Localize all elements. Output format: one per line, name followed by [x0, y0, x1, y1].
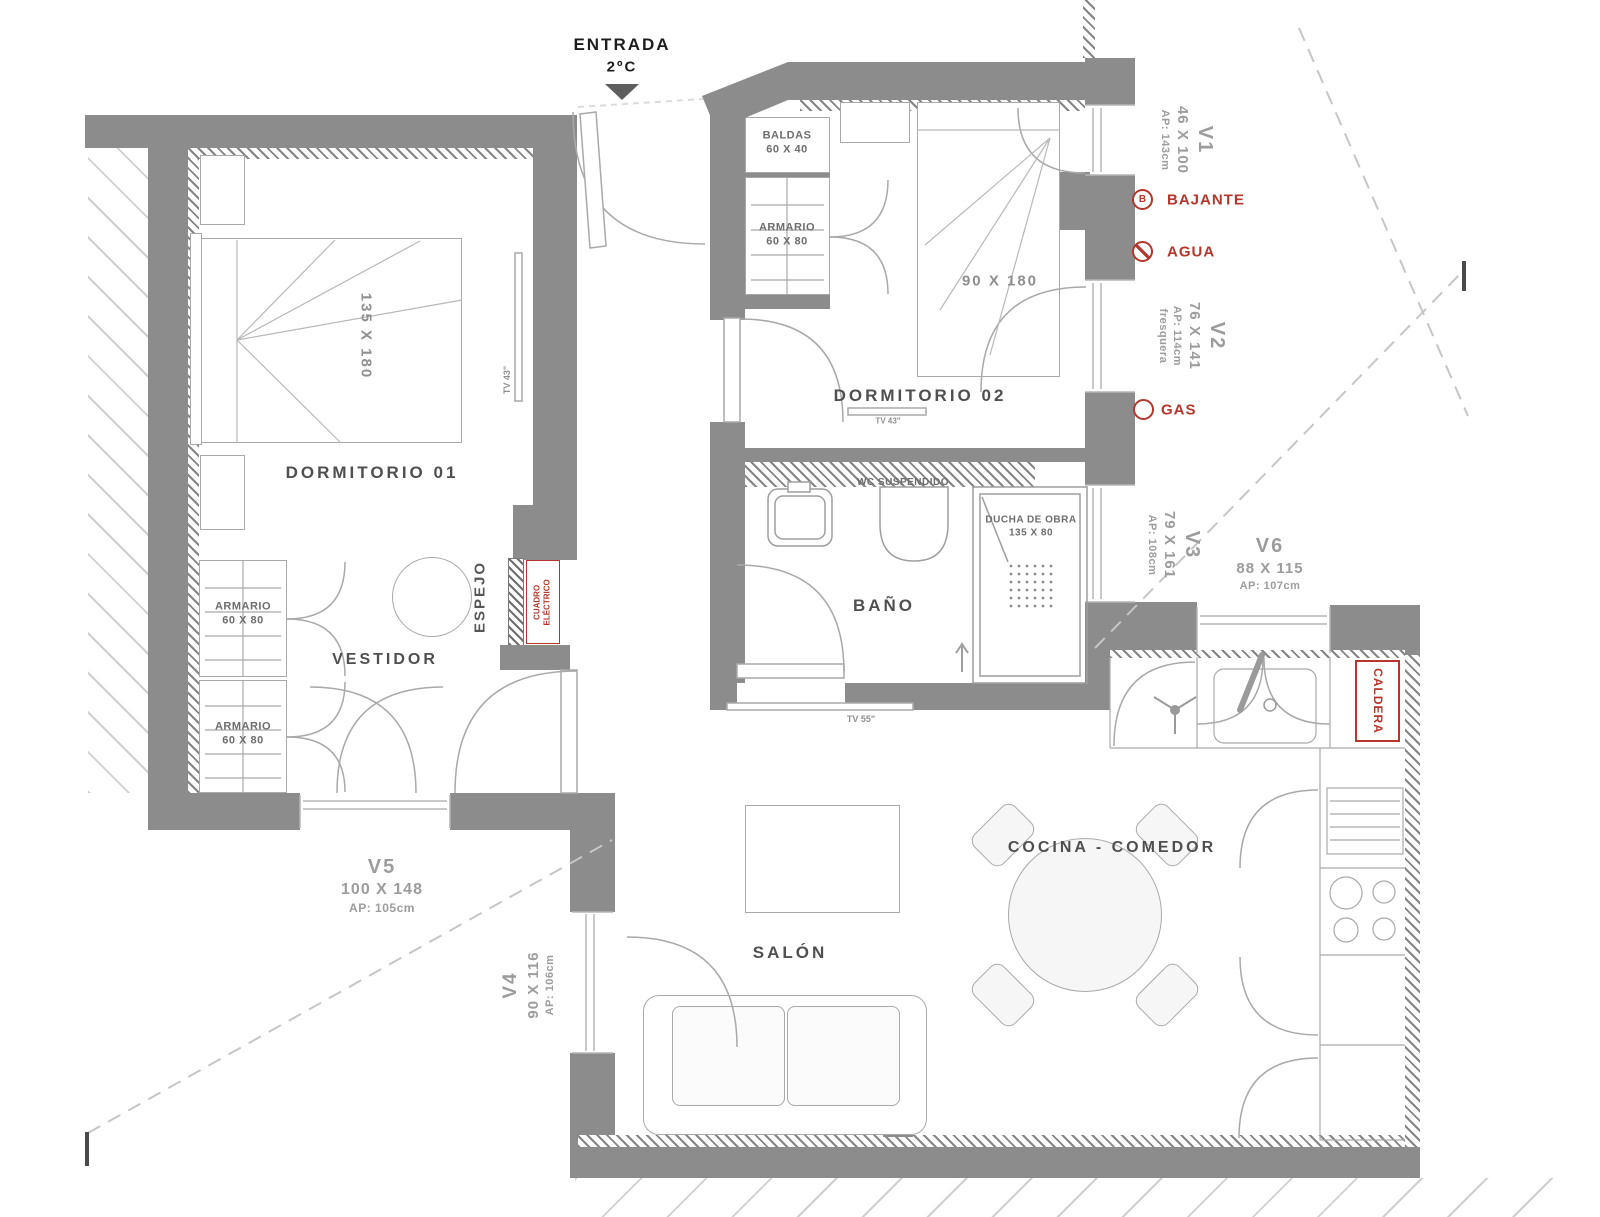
agua-label: AGUA [1167, 244, 1215, 261]
window-label-v4: V4 90 X 116 AP: 106cm [499, 951, 557, 1018]
window-v1-leaf-arc [1018, 108, 1085, 173]
cuadro-line2: ELÉCTRICO [543, 579, 553, 625]
v1-ap: AP: 143cm [1158, 106, 1172, 174]
window-label-v6: V6 88 X 115 AP: 107cm [1236, 533, 1303, 593]
gas-icon [1133, 399, 1154, 420]
ducha-name: DUCHA DE OBRA [985, 515, 1076, 528]
v2-size: 76 X 141 [1185, 302, 1205, 370]
ducha-label: DUCHA DE OBRA 135 X 80 [985, 515, 1076, 540]
v4-ap: AP: 106cm [543, 951, 557, 1018]
boundary-lines [87, 28, 1468, 1166]
armario-door-arc [287, 562, 345, 619]
entrance-temp: 2ºC [607, 59, 638, 76]
entrance-threshold [578, 99, 703, 107]
window-v6-leaf-arc [1264, 658, 1330, 724]
v3-size: 79 X 161 [1159, 511, 1179, 579]
vestidor-door-leaf [561, 670, 577, 793]
window-label-v2: V2 76 X 141 AP: 114cm fresquera [1156, 302, 1230, 370]
armario-door-arc [830, 180, 888, 237]
cuadro-line1: CUADRO [533, 579, 543, 625]
v2-note: fresquera [1156, 302, 1170, 370]
vestidor-door-arc [455, 671, 577, 793]
caldera-label: CALDERA [1371, 668, 1385, 734]
bed-size-dorm2: 90 X 180 [962, 273, 1038, 290]
armario-vestidor1-label: ARMARIO 60 X 80 [215, 600, 271, 628]
cabinet-door-arc [1239, 1058, 1318, 1138]
armario-door-arc [287, 682, 345, 737]
tv-label-dorm1: TV 43" [502, 366, 512, 394]
cuadro-electrico-label: CUADRO ELÉCTRICO [533, 579, 554, 625]
window-label-v3: V3 79 X 161 AP: 108cm [1145, 511, 1205, 579]
cabinet-door-arc [1240, 957, 1318, 1035]
v1-id: V1 [1192, 106, 1218, 174]
armario-size: 60 X 80 [215, 734, 271, 748]
wc-suspendido-label: WC SUSPENDIDO [857, 477, 949, 490]
room-label-vestidor: VESTIDOR [332, 651, 438, 669]
agua-icon [1132, 241, 1153, 262]
tv-salon [727, 703, 913, 710]
entrance-arrow-icon [605, 84, 639, 100]
room-label-cocina: COCINA - COMEDOR [1008, 839, 1216, 857]
armario-door-arc [830, 237, 888, 294]
gas-label: GAS [1161, 402, 1197, 419]
ducha-size: 135 X 80 [985, 527, 1076, 540]
tv-dorm1 [515, 253, 522, 401]
tv-dorm2 [848, 408, 926, 415]
entrance-door-leaf [580, 112, 606, 248]
armario-door-arc [287, 737, 345, 792]
armario-dorm2-label: ARMARIO 60 X 80 [759, 221, 815, 249]
bath-door-leaf [737, 664, 844, 678]
caldera-box: CALDERA [1355, 660, 1400, 742]
diagonal-wall [702, 62, 788, 130]
v2-id: V2 [1204, 302, 1230, 370]
window-v5-leaf-arc [337, 687, 443, 793]
v4-id: V4 [499, 951, 524, 1018]
floor-plan: ENTRADA 2ºC DORMITORIO 01 135 X 180 TV 4… [0, 0, 1600, 1217]
v1-size: 46 X 100 [1172, 106, 1192, 174]
armario-vestidor2-label: ARMARIO 60 X 80 [215, 720, 271, 748]
room-label-dorm1: DORMITORIO 01 [286, 463, 459, 483]
v2-ap: AP: 114cm [1170, 302, 1184, 370]
cuadro-electrico-box: CUADRO ELÉCTRICO [526, 560, 560, 644]
baldas-label: BALDAS 60 X 40 [763, 129, 812, 157]
tv-label-salon: TV 55" [847, 714, 875, 724]
baldas-name: BALDAS [763, 129, 812, 143]
bath-fixtures [768, 482, 1087, 683]
v5-size: 100 X 148 [341, 880, 423, 901]
dorm2-door-leaf [724, 318, 740, 422]
wc-toilet [880, 487, 948, 561]
v6-ap: AP: 107cm [1236, 579, 1303, 593]
tv-label-dorm2: TV 43" [875, 417, 900, 426]
armario-name: ARMARIO [759, 221, 815, 235]
v3-id: V3 [1179, 511, 1205, 579]
v3-ap: AP: 108cm [1145, 511, 1159, 579]
armario-name: ARMARIO [215, 720, 271, 734]
v5-ap: AP: 105cm [341, 901, 423, 917]
window-label-v1: V1 46 X 100 AP: 143cm [1158, 106, 1218, 174]
bajante-icon: B [1132, 189, 1153, 210]
v6-size: 88 X 115 [1236, 559, 1303, 579]
bath-door-arc [737, 565, 844, 672]
v5-id: V5 [341, 854, 423, 880]
window-v6-leaf-arc [1197, 658, 1263, 724]
baldas-size: 60 X 40 [763, 143, 812, 157]
dorm2-door-arc [740, 319, 843, 422]
window-label-v5: V5 100 X 148 AP: 105cm [341, 854, 423, 916]
cabinet-door-arc [1240, 790, 1318, 868]
bed-size-dorm1: 135 X 180 [358, 293, 375, 379]
room-label-salon: SALÓN [753, 943, 828, 963]
armario-size: 60 X 80 [215, 614, 271, 628]
window-v4-leaf-arc [627, 937, 737, 1047]
espejo-label: ESPEJO [472, 561, 489, 633]
v4-size: 90 X 116 [523, 951, 543, 1018]
room-label-dorm2: DORMITORIO 02 [834, 386, 1007, 406]
armario-size: 60 X 80 [759, 235, 815, 249]
room-label-bano: BAÑO [853, 596, 915, 616]
armario-name: ARMARIO [215, 600, 271, 614]
window-v5-leaf-arc [310, 687, 416, 793]
entrance-label: ENTRADA [573, 35, 670, 55]
window-v2-leaf-arc [981, 287, 1086, 392]
v6-id: V6 [1236, 533, 1303, 559]
bajante-label: BAJANTE [1167, 192, 1245, 209]
